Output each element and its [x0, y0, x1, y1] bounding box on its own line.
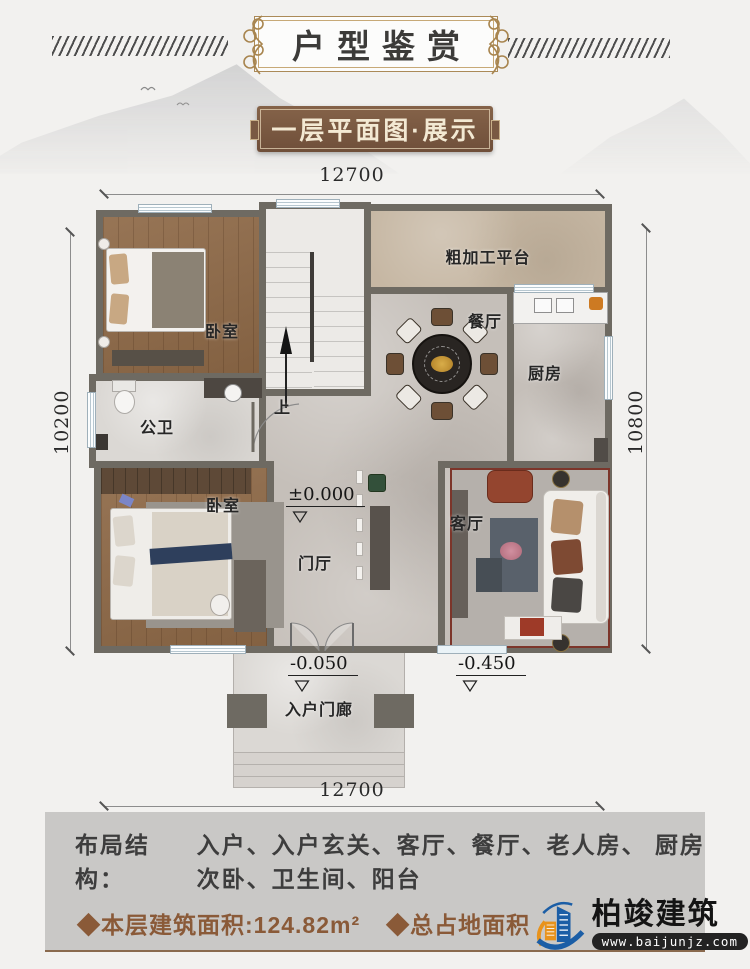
kitchen-sink [534, 298, 552, 313]
stairs-up-arrow-icon [280, 326, 292, 354]
bedroom-bottom-label: 卧室 [206, 492, 240, 516]
window [138, 204, 212, 213]
entry-double-door-arcs [290, 622, 354, 652]
level-triangle-icon [462, 680, 478, 692]
sofa-cushion [550, 499, 583, 536]
screen-slat [356, 470, 363, 484]
blanket [152, 252, 204, 328]
stairs-up-label: 上 [274, 394, 291, 418]
bench-cushion [520, 618, 544, 636]
brand-name: 柏竣建筑 [592, 899, 748, 931]
chair [431, 308, 453, 326]
banner-notch [250, 120, 259, 140]
floor-lamp [96, 434, 108, 450]
dim-line-top [104, 194, 600, 195]
desk [234, 560, 266, 632]
chair [386, 353, 404, 375]
title-banner: 户型鉴赏 [254, 16, 498, 72]
screen-slat [356, 542, 363, 556]
pillow [112, 515, 135, 547]
desk-chair [210, 594, 230, 616]
dim-bottom: 12700 [104, 779, 600, 801]
stair-steps-right [314, 296, 364, 388]
cooktop [589, 297, 603, 310]
pillow [112, 555, 135, 587]
level-triangle-icon [292, 511, 308, 523]
closet [101, 468, 251, 494]
level-triangle-icon [294, 680, 310, 692]
brand-website: www.baijunjz.com [592, 933, 748, 950]
banner-notch [491, 120, 500, 140]
sofa-cushion [551, 539, 584, 575]
chair [431, 402, 453, 420]
level-value: -0.450 [456, 653, 526, 676]
kitchen-label: 厨房 [528, 360, 562, 384]
page-title: 户型鉴赏 [280, 20, 472, 68]
mountain-watercolor-right [560, 92, 750, 174]
stair-divider [310, 252, 314, 362]
dim-line-bottom [104, 806, 600, 807]
sofa-cushion [551, 577, 583, 613]
poster-page: 户型鉴赏 一层平面图·展示 上 粗加工平台 厨房 [0, 0, 750, 969]
plan-subtitle: 一层平面图·展示 [271, 111, 478, 147]
slash-pattern-right [508, 38, 670, 58]
side-table [476, 558, 502, 592]
chair [480, 353, 498, 375]
level-marker-ground: ±0.000 [286, 484, 365, 528]
level-value: ±0.000 [286, 484, 365, 507]
slash-pattern-left [52, 36, 228, 56]
bath-sink [224, 384, 242, 402]
window [514, 284, 594, 293]
dresser [112, 350, 204, 366]
nightstand [98, 336, 110, 348]
fridge [594, 438, 608, 462]
armchair [487, 470, 533, 503]
shoe-cabinet [370, 506, 390, 590]
total-area-text: ◆总占地面积 [386, 906, 530, 940]
porch-label: 入户门廊 [233, 696, 405, 720]
layout-label: 布局结构： [75, 828, 197, 896]
sofa-back [596, 492, 606, 622]
platform-label: 粗加工平台 [364, 244, 612, 268]
window [170, 645, 246, 654]
kitchen-sink [556, 298, 574, 313]
dim-right: 10800 [625, 391, 647, 455]
dim-left: 10200 [51, 391, 73, 455]
floor-area-text: ◆本层建筑面积:124.82m² [77, 906, 360, 940]
area-row: ◆本层建筑面积:124.82m² ◆总占地面积 [77, 906, 530, 940]
living-label: 客厅 [450, 510, 484, 534]
dim-top: 12700 [104, 164, 600, 186]
bedroom-top-label: 卧室 [205, 318, 239, 342]
dining-label: 餐厅 [468, 308, 502, 332]
level-value: -0.050 [288, 653, 358, 676]
foyer-label: 门厅 [298, 550, 332, 574]
brand-logo: 柏竣建筑 www.baijunjz.com [533, 884, 748, 966]
subtitle-banner: 一层平面图·展示 [257, 106, 493, 152]
bird-icon [176, 100, 190, 107]
toilet [114, 390, 135, 414]
table-flowers [500, 542, 522, 560]
window [604, 336, 613, 400]
potted-plant [368, 474, 386, 492]
scroll-ornament-icon [484, 14, 514, 76]
round-side-table [552, 470, 570, 488]
dining-centerpiece [431, 356, 453, 372]
pillow [109, 253, 130, 284]
nightstand [98, 238, 110, 250]
scroll-ornament-icon [238, 14, 268, 76]
level-marker-porch: -0.050 [288, 653, 358, 697]
bird-icon [140, 84, 156, 92]
bathroom-label: 公卫 [140, 414, 174, 438]
stair-steps-left [266, 252, 312, 390]
level-marker-yard: -0.450 [456, 653, 526, 697]
window [276, 199, 340, 208]
builder-logo-icon [533, 892, 588, 958]
brand-text: 柏竣建筑 www.baijunjz.com [592, 899, 748, 951]
window [87, 392, 96, 448]
screen-slat [356, 566, 363, 580]
layout-line-1: 入户、入户玄关、客厅、餐厅、老人房、 厨房 [197, 828, 705, 862]
pillow [109, 293, 130, 324]
